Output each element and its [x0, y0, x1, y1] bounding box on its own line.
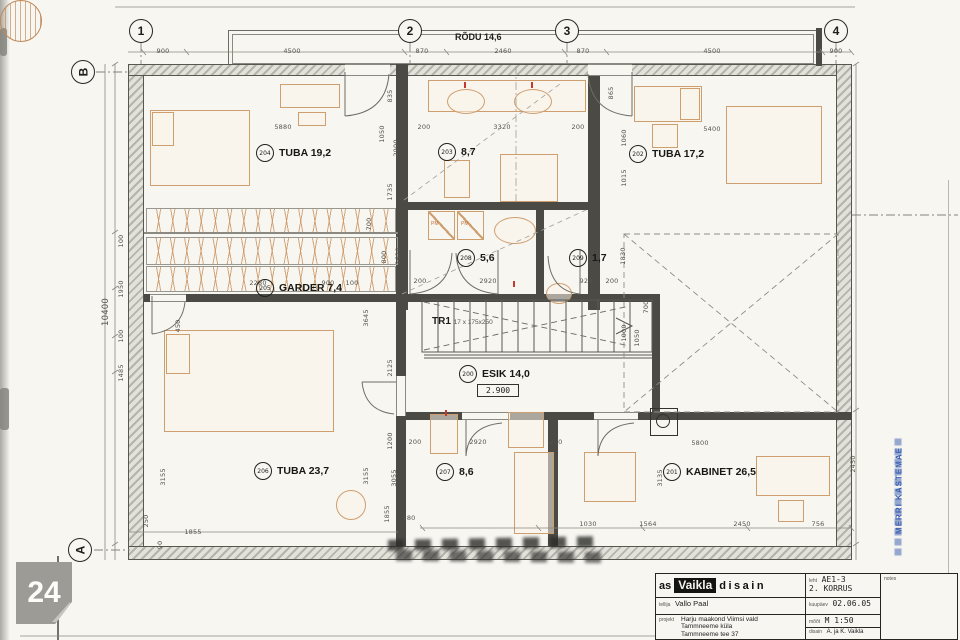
scale-value: M 1:50	[825, 616, 854, 625]
dimension-label: 870	[576, 47, 589, 55]
dimension-label: 200	[605, 277, 618, 285]
client-name: Vallo Paal	[675, 599, 708, 608]
date-label: kuupäev	[809, 602, 828, 608]
scale-label: mõõt	[809, 619, 820, 625]
date-value: 02.06.05	[832, 599, 871, 608]
axis-bubble-4: 4	[824, 19, 848, 43]
room-number-bubble: 200	[459, 365, 477, 383]
dimension-label: 2460	[494, 47, 511, 55]
dimension-label: 700	[365, 217, 373, 230]
dimension-label: 3645	[362, 309, 370, 326]
date-cell: kuupäev 02.06.05	[806, 598, 880, 613]
dimension-label: 1564	[639, 520, 656, 528]
room-number-bubble: 201	[663, 463, 681, 481]
room-label-201: 201KABINET 26,5	[663, 463, 756, 481]
room-number-bubble: 207	[436, 463, 454, 481]
dimension-label: 900	[156, 47, 169, 55]
dimension-label: 700	[642, 300, 650, 313]
dimension-label: 1030	[579, 520, 596, 528]
dimension-label: 1855	[184, 528, 201, 536]
notes-cell: notes	[881, 574, 957, 639]
axis-bubble-B: B	[71, 60, 95, 84]
badge-number: 24	[27, 576, 60, 610]
stair-spec: 17 x 175x250	[454, 319, 493, 326]
room-label-202: 202TUBA 17,2	[629, 145, 704, 163]
dimension-label: 2125	[386, 359, 394, 376]
designer-cell: disain A. ja K. Vaikla	[806, 628, 880, 640]
dimension-label: 200	[417, 123, 430, 131]
room-name: TUBA 19,2	[279, 147, 331, 159]
dimension-label: 1060	[620, 129, 628, 146]
dimension-label: 200	[571, 123, 584, 131]
dimension-label: 100	[345, 279, 358, 287]
dimension-label: 180	[402, 514, 415, 522]
room-name: TUBA 23,7	[277, 465, 329, 477]
room-name: KABINET 26,5	[686, 466, 756, 478]
room-number-bubble: 203	[438, 143, 456, 161]
dimension-label: 5400	[703, 125, 720, 133]
esik-level-box: 2.900	[477, 384, 519, 397]
dimension-label: 2900	[392, 139, 400, 156]
dimension-label: 200	[549, 438, 562, 446]
dimension-label: 90	[156, 541, 164, 550]
room-label-200: 200ESIK 14,0	[459, 365, 530, 383]
dimension-label: 3055	[390, 469, 398, 486]
designer-label: disain	[809, 629, 822, 635]
room-name: 8,7	[461, 146, 476, 158]
room-name: 1,7	[592, 252, 607, 264]
sheet-cell: leht AE1-3 2. KORRUS	[806, 574, 880, 597]
stair-label: TR1 17 x 175x250	[432, 316, 493, 327]
dimension-label: 4500	[703, 47, 720, 55]
dimension-label: 1050	[378, 125, 386, 142]
dimension-label: 870	[415, 47, 428, 55]
appliance-label-pm-2: PM	[461, 221, 469, 227]
dimension-label: 200	[408, 438, 421, 446]
project-line-3: Tammneeme tee 37	[681, 631, 802, 639]
room-label-209: 2091,7	[569, 249, 607, 267]
dimension-label: 1015	[620, 169, 628, 186]
dimension-label: 200	[413, 277, 426, 285]
axis-bubble-3: 3	[555, 19, 579, 43]
dimension-label: 920	[579, 277, 592, 285]
notes-label: notes	[884, 576, 896, 582]
project-line-1: Harju maakond Viimsi vald	[681, 616, 802, 624]
room-label-206: 206TUBA 23,7	[254, 462, 329, 480]
room-label-207: 2078,6	[436, 463, 474, 481]
room-name: ESIK 14,0	[482, 368, 530, 380]
dimension-label: 2920	[469, 438, 486, 446]
door-arcs	[152, 72, 634, 456]
title-block: as Vaikla disain leht AE1-3 2. KORRUS te…	[655, 573, 958, 640]
dimension-label: 1050	[633, 329, 641, 346]
dimension-label: 1200	[386, 432, 394, 449]
axis-bubble-1: 1	[129, 19, 153, 43]
dimension-label: 10400	[101, 298, 111, 326]
dimension-label: 5880	[274, 123, 291, 131]
axis-letter: A	[73, 546, 87, 555]
designer-value: A. ja K. Vaikla	[827, 629, 864, 635]
dimension-label: 4500	[283, 47, 300, 55]
axis-bubble-2: 2	[398, 19, 422, 43]
dimension-label: 250	[142, 514, 150, 527]
dimension-label: 800	[380, 250, 388, 263]
axis-letter: B	[76, 68, 90, 77]
dimension-label: 835	[386, 89, 394, 102]
dimension-label: 3155	[362, 467, 370, 484]
project-line-2: Tammneeme küla	[681, 623, 802, 631]
sheet-title: 2. KORRUS	[809, 584, 852, 593]
appliance-label-pm-1: PM	[431, 221, 439, 227]
dimension-label: 450	[174, 319, 182, 332]
dimension-label: 1855	[383, 505, 391, 522]
dimension-label: 1000	[620, 324, 628, 341]
brand-prefix: as	[659, 580, 671, 592]
dimension-label: 100	[117, 329, 125, 342]
room-name: TUBA 17,2	[652, 148, 704, 160]
stair-name: TR1	[432, 316, 451, 327]
dimension-label: 3320	[493, 123, 510, 131]
sheet-number: AE1-3	[822, 575, 846, 584]
room-number-bubble: 208	[457, 249, 475, 267]
brand-name: Vaikla	[674, 578, 716, 593]
project-cell: projekt Harju maakond Viimsi vald Tammne…	[656, 615, 806, 640]
dimension-label: 1830	[619, 247, 627, 264]
dimension-label: 756	[811, 520, 824, 528]
dimension-label: 900	[829, 47, 842, 55]
room-number-bubble: 204	[256, 144, 274, 162]
dimension-label: 2450	[849, 455, 857, 472]
scanned-floor-plan-page: RÕDU 14,6	[0, 0, 960, 640]
room-number-bubble: 209	[569, 249, 587, 267]
watermark-smudge-2	[396, 550, 604, 563]
dimension-label: 2920	[479, 277, 496, 285]
title-block-left: as Vaikla disain leht AE1-3 2. KORRUS te…	[656, 574, 881, 639]
room-name: 5,6	[480, 252, 495, 264]
client-label: tellija	[659, 602, 670, 608]
room-number-bubble: 206	[254, 462, 272, 480]
dimension-label: 2450	[733, 520, 750, 528]
dimension-label: 3155	[159, 468, 167, 485]
brand-logo: as Vaikla disain	[656, 574, 806, 597]
dimension-label: 1485	[117, 364, 125, 381]
scale-cell: mõõt M 1:50	[806, 615, 880, 628]
room-label-203: 2038,7	[438, 143, 476, 161]
dimension-label: 865	[607, 86, 615, 99]
room-label-204: 204TUBA 19,2	[256, 144, 331, 162]
room-number-bubble: 202	[629, 145, 647, 163]
room-label-208: 2085,6	[457, 249, 495, 267]
axis-lines	[94, 43, 958, 550]
dimension-label: 2280	[249, 279, 266, 287]
dimension-label: 3135	[656, 469, 664, 486]
dimension-label: 1620	[394, 247, 402, 264]
brand-suffix: disain	[719, 580, 766, 592]
dimension-label: 100	[117, 234, 125, 247]
room-name: 8,6	[459, 466, 474, 478]
axis-bubble-A: A	[68, 538, 92, 562]
dimension-label: 5800	[691, 439, 708, 447]
dimension-label: 1950	[117, 280, 125, 297]
void-cross	[624, 234, 838, 412]
project-label: projekt	[659, 617, 674, 623]
dimension-label: 900	[321, 279, 334, 287]
dimension-label: 1735	[386, 183, 394, 200]
client-cell: tellija Vallo Paal	[656, 598, 806, 613]
